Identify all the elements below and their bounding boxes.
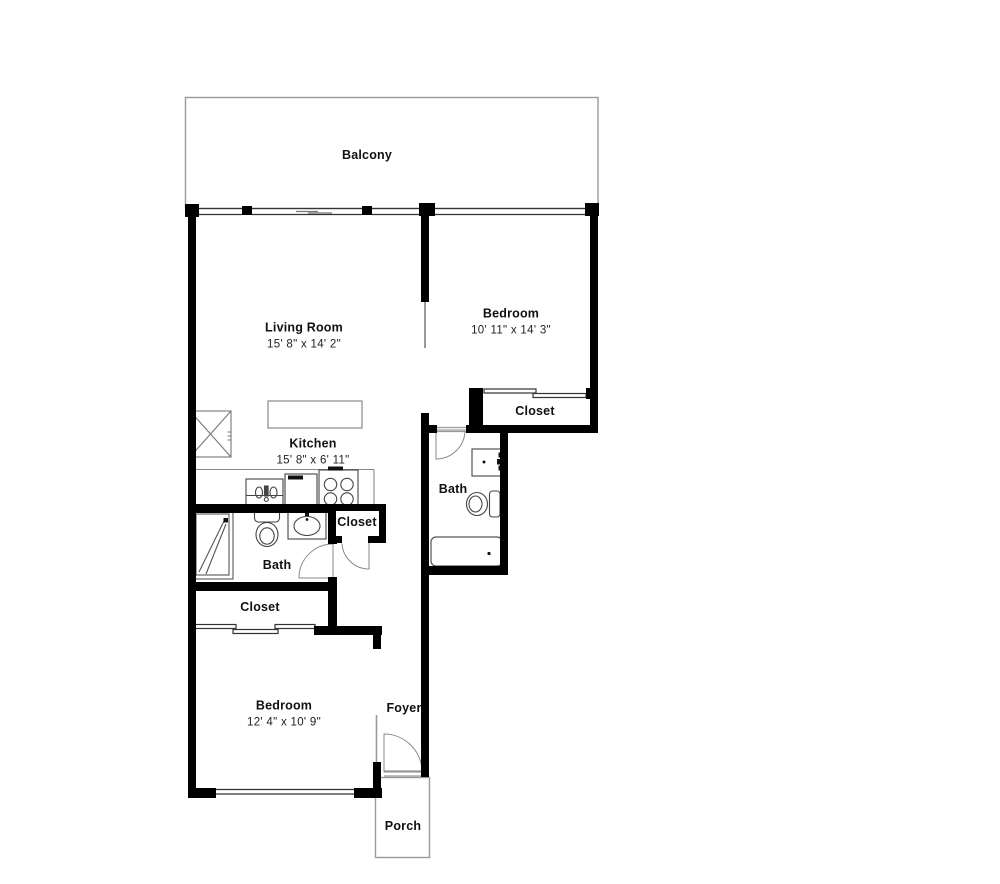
- kitchen-label: Kitchen 15' 8" x 6' 11": [276, 437, 349, 466]
- floor-plan-drawing: [0, 0, 1000, 884]
- bath-2-label: Bath: [439, 483, 468, 497]
- stove-fixture: [319, 467, 358, 506]
- bath-1-label: Bath: [263, 559, 292, 573]
- bedroom-1-closet-label: Closet: [515, 405, 554, 419]
- bedroom-1-label: Bedroom 10' 11" x 14' 3": [471, 307, 551, 336]
- kitchen-island: [268, 401, 362, 428]
- hall-closet-label: Closet: [337, 516, 376, 530]
- living-room-name: Living Room: [265, 321, 343, 335]
- vanity-sink-2-fixture: [472, 449, 505, 476]
- kitchen-name: Kitchen: [276, 437, 349, 451]
- porch-name: Porch: [385, 820, 421, 834]
- bath-1-name: Bath: [263, 559, 292, 573]
- bath-2-name: Bath: [439, 483, 468, 497]
- foyer-name: Foyer: [386, 702, 421, 716]
- shower-fixture: [192, 510, 233, 579]
- bedroom-2-label: Bedroom 12' 4" x 10' 9": [247, 699, 321, 728]
- bedroom-2-name: Bedroom: [247, 699, 321, 713]
- hall-closet-name: Closet: [337, 516, 376, 530]
- bedroom-2-closet-name: Closet: [240, 601, 279, 615]
- dishwasher-fixture: [285, 474, 317, 505]
- bedroom-1-closet-name: Closet: [515, 405, 554, 419]
- bathtub-fixture: [431, 537, 502, 566]
- living-room-dimensions: 15' 8" x 14' 2": [265, 338, 343, 351]
- bedroom1-closet-sliding-door: [484, 389, 586, 398]
- bedroom-1-name: Bedroom: [471, 307, 551, 321]
- kitchen-dimensions: 15' 8" x 6' 11": [276, 454, 349, 467]
- bedroom2-closet-sliding-door: [194, 625, 315, 634]
- living-room-label: Living Room 15' 8" x 14' 2": [265, 321, 343, 350]
- bedroom-1-dimensions: 10' 11" x 14' 3": [471, 324, 551, 337]
- bedroom-2-closet-label: Closet: [240, 601, 279, 615]
- kitchen-sink-cabinet: [246, 479, 283, 505]
- toilet-2-fixture: [467, 491, 501, 517]
- refrigerator-fixture: [190, 411, 232, 457]
- bedroom-2-dimensions: 12' 4" x 10' 9": [247, 716, 321, 729]
- porch-outline: [376, 778, 430, 858]
- toilet-1-fixture: [255, 509, 280, 547]
- porch-label: Porch: [385, 820, 421, 834]
- foyer-label: Foyer: [386, 702, 421, 716]
- balcony-label: Balcony: [342, 149, 392, 163]
- balcony-name: Balcony: [342, 149, 392, 163]
- floor-plan-page: Balcony Living Room 15' 8" x 14' 2" Bedr…: [0, 0, 1000, 884]
